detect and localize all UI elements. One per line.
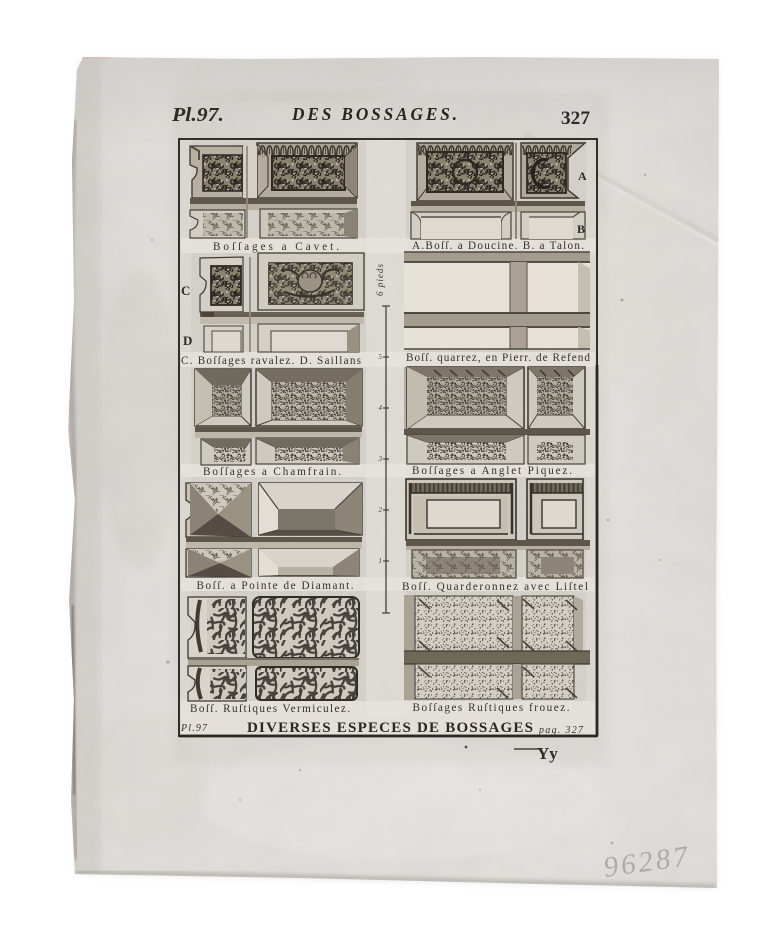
svg-text:5: 5	[379, 353, 383, 361]
svg-text:Pl.97: Pl.97	[180, 723, 208, 734]
svg-text:Boſſ. quarrez, en Pierr. de Re: Boſſ. quarrez, en Pierr. de Refend	[406, 352, 590, 364]
svg-text:DES BOSSAGES.: DES BOSSAGES.	[291, 104, 460, 124]
svg-text:C. Boſſages ravalez. D. Sailla: C. Boſſages ravalez. D. Saillans	[181, 355, 361, 367]
svg-text:Boſſages Ruſtiques frouez.: Boſſages Ruſtiques frouez.	[413, 702, 570, 714]
svg-text:2: 2	[379, 506, 383, 514]
svg-text:6 pieds: 6 pieds	[375, 264, 385, 296]
svg-text:D: D	[183, 333, 192, 348]
svg-text:Pl.97.: Pl.97.	[171, 104, 224, 126]
svg-text:B: B	[577, 222, 585, 236]
svg-text:1: 1	[379, 557, 383, 565]
svg-text:Boſſ. a Pointe de Diamant.: Boſſ. a Pointe de Diamant.	[197, 580, 354, 592]
svg-text:pag. 327: pag. 327	[538, 725, 584, 736]
svg-text:4: 4	[379, 404, 383, 412]
svg-text:Yy: Yy	[537, 744, 558, 763]
svg-text:A.Boſſ. a Doucine. B. a Talon.: A.Boſſ. a Doucine. B. a Talon.	[412, 240, 584, 252]
svg-text:A: A	[578, 169, 587, 183]
svg-text:C: C	[181, 283, 190, 298]
svg-text:Boſſ. Ruſtiques Vermiculez.: Boſſ. Ruſtiques Vermiculez.	[190, 703, 350, 715]
svg-text:Boſſages a Anglet Piquez.: Boſſages a Anglet Piquez.	[412, 465, 572, 477]
svg-text:Boſſ. Quarderonnez avec Liſtel: Boſſ. Quarderonnez avec Liſtel	[402, 581, 588, 593]
svg-text:327: 327	[561, 108, 591, 129]
svg-text:DIVERSES ESPECES DE BOSSAGES: DIVERSES ESPECES DE BOSSAGES	[247, 720, 533, 736]
svg-text:3: 3	[378, 455, 383, 463]
